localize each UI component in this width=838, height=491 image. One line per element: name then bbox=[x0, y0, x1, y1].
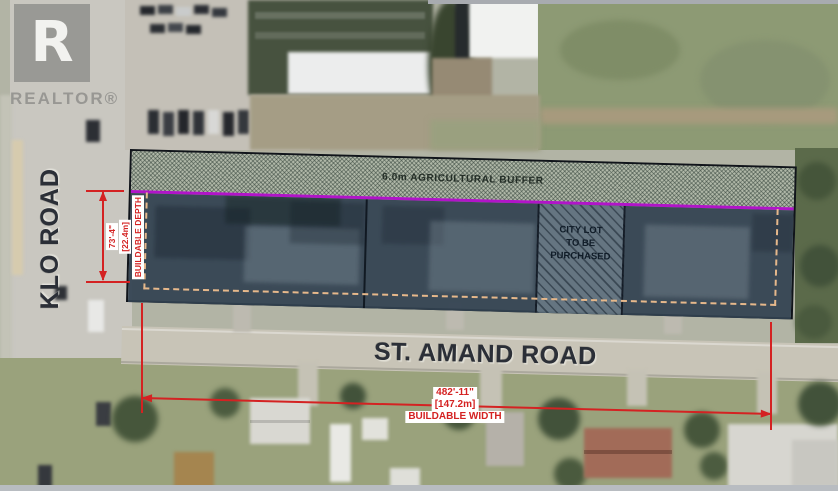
house-roof bbox=[362, 418, 388, 440]
parked-car bbox=[193, 111, 204, 135]
grass-strip bbox=[430, 120, 540, 150]
parked-car bbox=[150, 24, 165, 33]
tree bbox=[798, 382, 838, 426]
driveway bbox=[233, 304, 251, 332]
parked-car bbox=[223, 112, 234, 136]
width-dim-arrow-right bbox=[761, 410, 772, 418]
sidewalk bbox=[0, 95, 12, 395]
car-on-road bbox=[96, 402, 111, 426]
parked-car bbox=[148, 110, 159, 134]
tree bbox=[210, 388, 240, 418]
parked-car bbox=[163, 112, 174, 136]
greenhouse-ridge bbox=[255, 12, 425, 19]
width-metric-label: [147.2m] bbox=[432, 399, 479, 411]
parked-car bbox=[186, 25, 201, 34]
parked-car bbox=[140, 6, 155, 15]
driveway bbox=[757, 372, 777, 414]
driveway bbox=[627, 370, 647, 406]
rv-trailer bbox=[330, 424, 351, 482]
car-on-road bbox=[88, 300, 104, 332]
parked-car bbox=[158, 5, 173, 14]
aerial-site-plan: 6.0m AGRICULTURAL BUFFER CITY LOT TO BE … bbox=[0, 0, 838, 491]
klo-road-label: KLO ROAD bbox=[36, 168, 65, 309]
parked-car bbox=[178, 110, 189, 134]
st-amand-road-label: ST. AMAND ROAD bbox=[374, 338, 597, 372]
tree bbox=[538, 398, 580, 440]
width-imperial-label: 482'-11" bbox=[433, 387, 477, 399]
building-shadow bbox=[455, 0, 469, 62]
parcel-overlay: 6.0m AGRICULTURAL BUFFER CITY LOT TO BE … bbox=[126, 149, 797, 319]
parked-car bbox=[208, 110, 219, 134]
white-building-roof bbox=[288, 52, 433, 94]
parked-car bbox=[194, 5, 209, 14]
roadside-strip bbox=[12, 140, 23, 275]
tree bbox=[112, 396, 158, 442]
parked-car bbox=[212, 8, 227, 17]
parked-car bbox=[176, 7, 191, 16]
depth-metric-label: [22.4m] bbox=[119, 220, 131, 254]
depth-dim-line bbox=[102, 192, 104, 280]
depth-buildable-label: BUILDABLE DEPTH bbox=[132, 195, 144, 279]
realtor-wordmark: REALTOR® bbox=[10, 89, 119, 109]
tree bbox=[684, 412, 720, 448]
width-buildable-label: BUILDABLE WIDTH bbox=[405, 411, 504, 423]
tree bbox=[796, 305, 832, 339]
roof-ridge bbox=[250, 420, 310, 423]
realtor-logo-block: R bbox=[14, 4, 90, 82]
depth-dim-labels: 73'-4" [22.4m] BUILDABLE DEPTH bbox=[106, 190, 144, 284]
parked-car bbox=[168, 23, 183, 32]
realtor-r-mark: R bbox=[30, 15, 73, 71]
tree bbox=[798, 162, 836, 200]
white-building-roof bbox=[468, 0, 540, 58]
field-patch bbox=[560, 20, 680, 80]
greenhouse-ridge bbox=[255, 32, 425, 39]
realtor-logo: R REALTOR® bbox=[10, 4, 119, 109]
house-roof bbox=[792, 440, 838, 488]
depth-imperial-label: 73'-4" bbox=[106, 223, 118, 250]
buildable-area-outline bbox=[143, 192, 778, 306]
tree bbox=[700, 452, 728, 480]
bottom-edge-bar bbox=[0, 485, 838, 491]
top-edge-bar bbox=[428, 0, 838, 4]
roof-ridge bbox=[584, 450, 672, 454]
parked-car bbox=[238, 110, 249, 134]
tree bbox=[800, 245, 838, 287]
width-dim-arrow-left bbox=[141, 394, 152, 402]
car-on-road bbox=[86, 120, 100, 142]
dirt-path bbox=[540, 108, 838, 124]
